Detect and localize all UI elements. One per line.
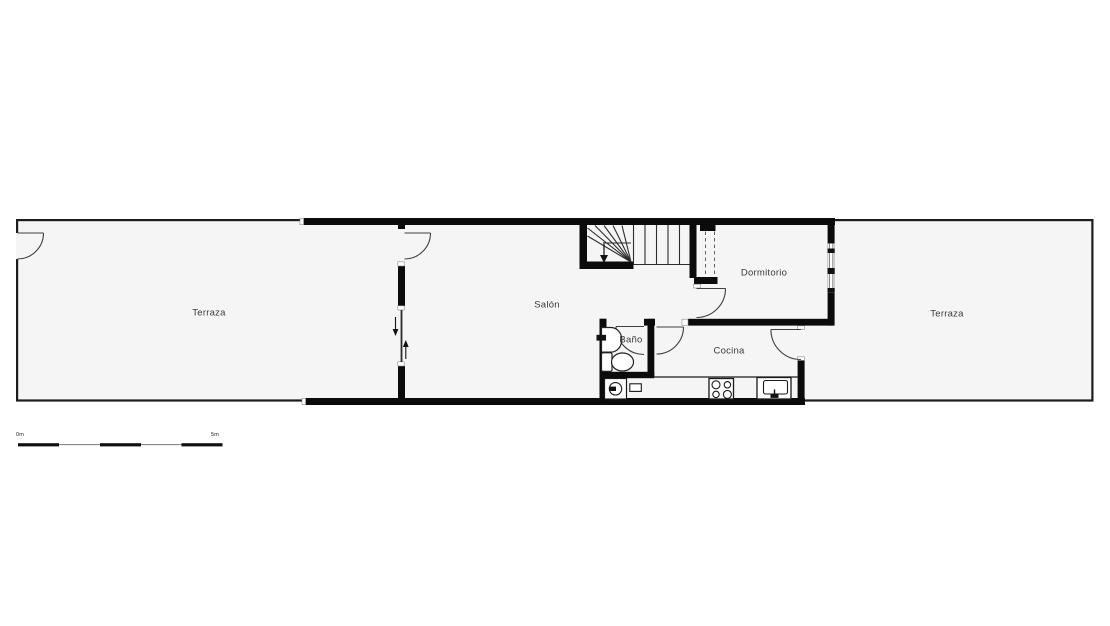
toilet [602,353,634,372]
scale-start-label: 0m [16,432,24,438]
kitchen-hob [709,379,734,400]
room-label-terraza-left: Terraza [192,308,225,319]
floor-plan-page: Terraza Salón Dormitorio Baño Cocina Ter… [0,0,1110,626]
room-label-terraza-right: Terraza [930,309,963,320]
kitchen-sink [757,378,791,400]
room-label-salon: Salón [534,300,560,311]
room-label-cocina: Cocina [713,346,744,357]
window [828,244,835,293]
room-label-bano: Baño [619,335,642,346]
room-label-dormitorio: Dormitorio [741,268,787,279]
scale-bar [18,443,223,446]
scale-end-label: 5m [211,432,219,438]
